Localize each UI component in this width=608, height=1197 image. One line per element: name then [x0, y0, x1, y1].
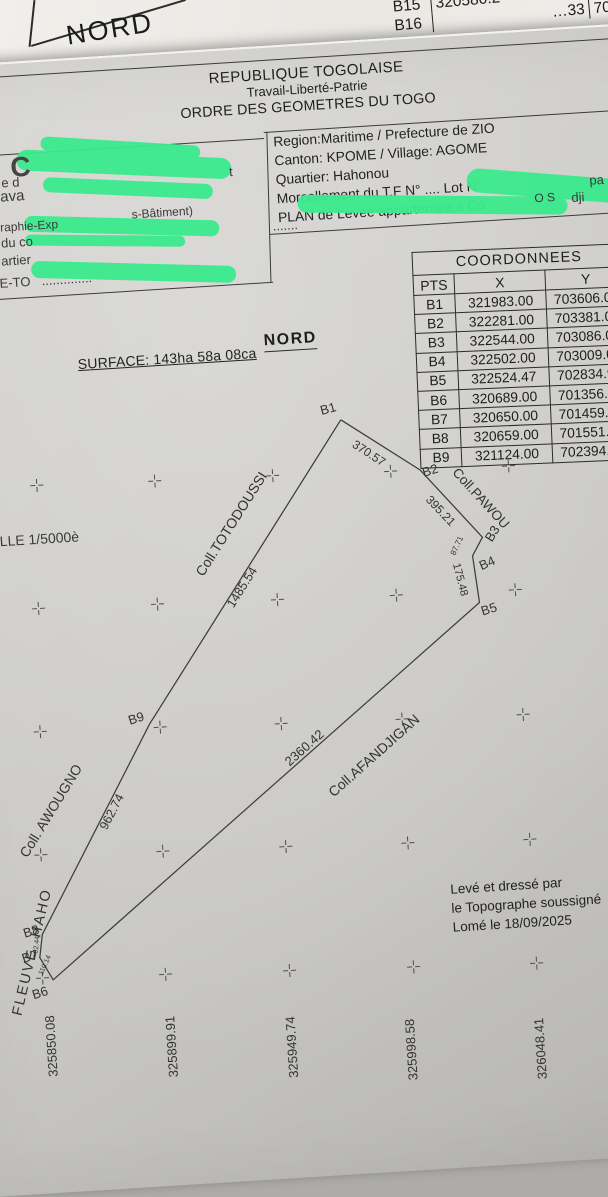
redacted-fragment: du co — [1, 233, 34, 250]
underlay-north-label: NORD — [64, 7, 155, 51]
scale-label: LLE 1/5000è — [0, 528, 79, 549]
table-cell: 7019 — [588, 0, 608, 19]
photo-of-survey-document: { "underlay": { "nord": "NORD", "mini_ta… — [0, 0, 608, 1080]
redacted-fragment: .............. — [41, 270, 92, 288]
redacted-fragment: O S — [534, 190, 556, 205]
table-cell: B16 — [390, 13, 433, 36]
redacted-fragment: artier — [1, 251, 32, 268]
redacted-fragment: ....... — [272, 217, 298, 234]
redacted-fragment: ava — [0, 187, 25, 205]
redacted-fragment: raphie-Exp — [0, 217, 59, 235]
redacted-fragment: E-TO — [0, 274, 31, 291]
underlay-border-line — [29, 0, 35, 47]
text-fragments: Cte davaraphie-Exps-Bâtiment)du coartier… — [0, 16, 608, 1197]
redacted-fragment: t — [229, 164, 234, 179]
redacted-fragment: s-Bâtiment) — [131, 203, 193, 221]
redacted-fragment: dji — [571, 189, 585, 205]
redacted-fragment: pa — [589, 172, 604, 188]
survey-plan-sheet: REPUBLIQUE TOGOLAISE Travail-Liberté-Pat… — [0, 14, 608, 1197]
